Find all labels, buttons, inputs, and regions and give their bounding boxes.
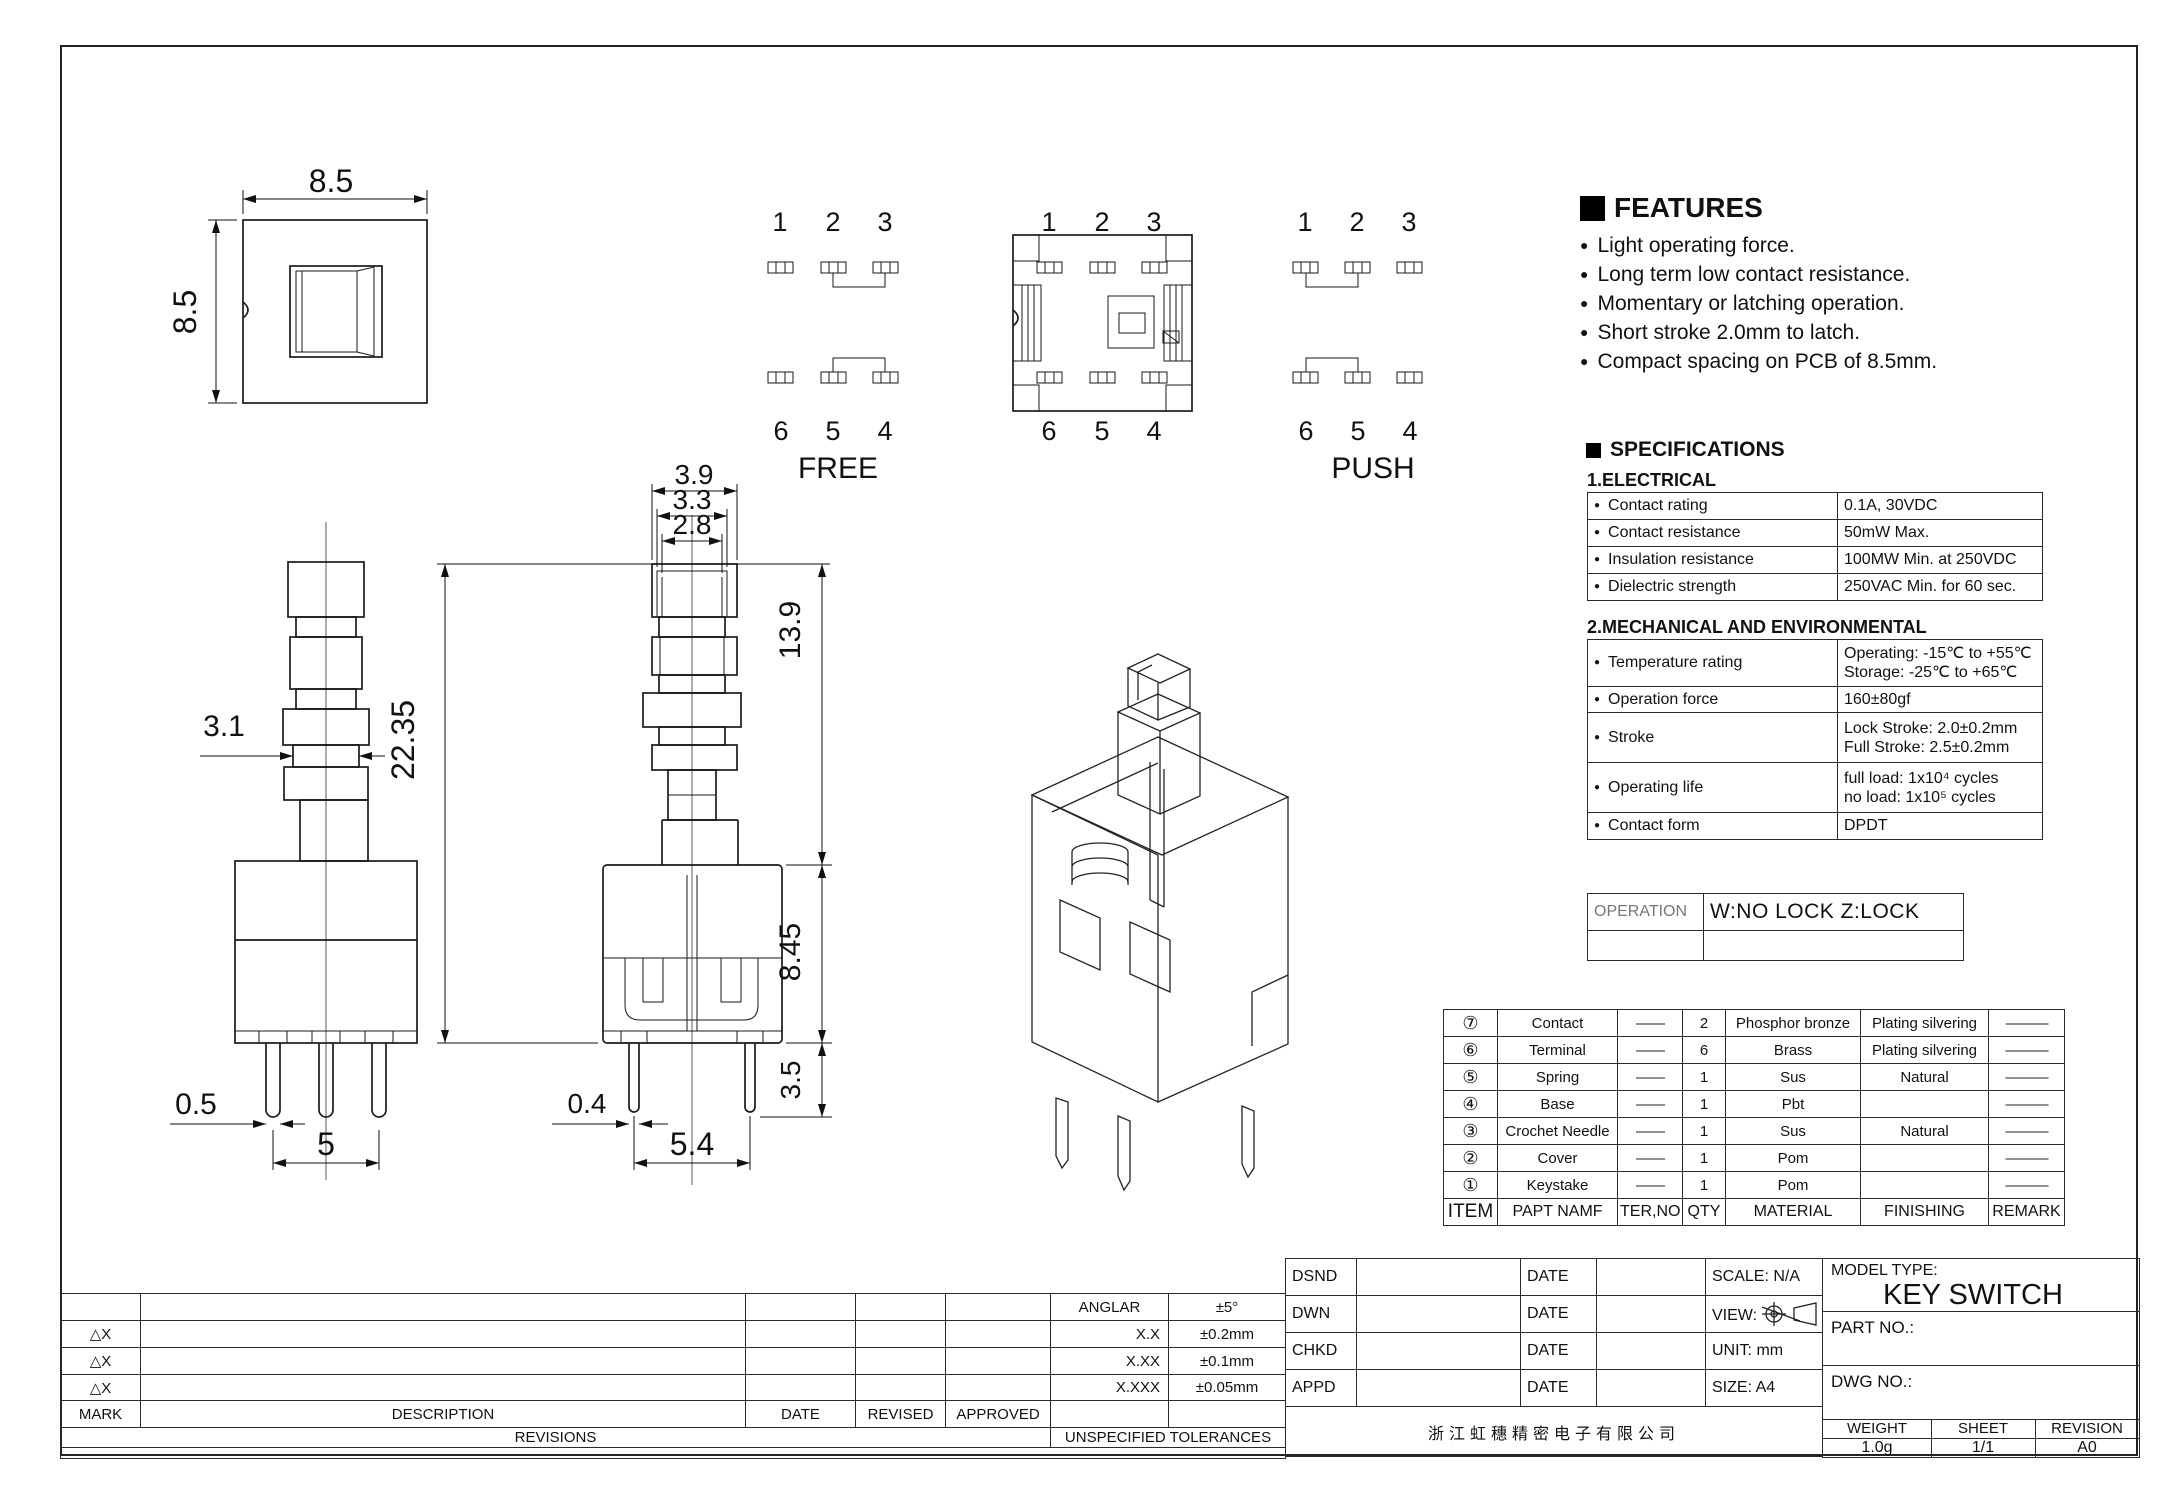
dim-cap-inner: 2.8: [673, 509, 712, 540]
model-type-label: MODEL TYPE:: [1831, 1262, 1938, 1280]
bom-finishing: Natural: [1861, 1064, 1989, 1091]
bom-ter-no: ——: [1618, 1091, 1683, 1118]
revision-mark: △X: [61, 1348, 141, 1375]
side-view: 3.1 0.5 5: [170, 522, 417, 1180]
bom-material: Sus: [1726, 1064, 1861, 1091]
date-label: DATE: [1521, 1296, 1597, 1333]
bom-finishing: [1861, 1172, 1989, 1199]
bom-item: ⑦: [1444, 1010, 1498, 1037]
dim-neck: 3.1: [203, 710, 245, 743]
pin-label: 3: [1146, 207, 1161, 237]
title-block-right: MODEL TYPE: KEY SWITCH PART NO.: DWG NO.…: [1822, 1258, 2140, 1458]
part-no-label: PART NO.:: [1831, 1318, 1914, 1338]
front-view: 3.9 3.3 2.8 22.35 13.9: [385, 459, 832, 1185]
sheet-value: 1/1: [1931, 1439, 2036, 1457]
pin-label: 2: [1349, 207, 1364, 237]
spec-label: Contact form: [1588, 813, 1838, 840]
bom-part-name: Contact: [1498, 1010, 1618, 1037]
revisions-title: REVISIONS: [61, 1428, 1051, 1448]
title-block: DSND DATE SCALE: N/A DWN DATE VIEW: CHKD…: [1285, 1258, 1823, 1457]
bom-row: ② Cover —— 1 Pom ———: [1444, 1145, 2065, 1172]
bom-item: ⑤: [1444, 1064, 1498, 1091]
tolerance-value: ±0.05mm: [1169, 1375, 1286, 1401]
pin-label: 5: [825, 416, 840, 446]
spec-value: 0.1A, 30VDC: [1838, 493, 2043, 520]
bom-material: Brass: [1726, 1037, 1861, 1064]
bom-part-name: Spring: [1498, 1064, 1618, 1091]
tolerance-label: X.X: [1051, 1321, 1169, 1348]
dim-pin-length: 3.5: [775, 1061, 806, 1100]
spec-label: Stroke: [1588, 713, 1838, 763]
size-field: SIZE: A4: [1706, 1370, 1823, 1407]
revisions-col-header: DESCRIPTION: [141, 1401, 746, 1428]
top-view: 1 2 3 6 5 4: [1013, 207, 1192, 446]
bom-header: MATERIAL: [1726, 1199, 1861, 1226]
spec-value: 100MW Min. at 250VDC: [1838, 547, 2043, 574]
date-label: DATE: [1521, 1333, 1597, 1370]
pin-label: 4: [1146, 416, 1161, 446]
bom-row: ④ Base —— 1 Pbt ———: [1444, 1091, 2065, 1118]
mechanical-spec-table: Temperature rating Operating: -15℃ to +5…: [1587, 639, 2043, 840]
revisions-col-header: DATE: [746, 1401, 856, 1428]
revision-value: A0: [2035, 1439, 2139, 1457]
spec-value: 250VAC Min. for 60 sec.: [1838, 574, 2043, 601]
sheet-header: SHEET: [1931, 1420, 2036, 1439]
bom-ter-no: ——: [1618, 1010, 1683, 1037]
features-list: Light operating force. Long term low con…: [1580, 234, 2065, 373]
bom-material: Pom: [1726, 1145, 1861, 1172]
spec-label: Operation force: [1588, 687, 1838, 713]
tolerance-value: ±0.1mm: [1169, 1348, 1286, 1375]
bom-header: QTY: [1683, 1199, 1726, 1226]
tolerance-label: X.XX: [1051, 1348, 1169, 1375]
role-label: APPD: [1286, 1370, 1357, 1407]
bom-item: ⑥: [1444, 1037, 1498, 1064]
tolerance-value: ±5°: [1169, 1294, 1286, 1321]
dwg-no-label: DWG NO.:: [1831, 1372, 1912, 1392]
pin-label: 2: [1094, 207, 1109, 237]
bom-ter-no: ——: [1618, 1064, 1683, 1091]
bom-row: ⑤ Spring —— 1 Sus Natural ———: [1444, 1064, 2065, 1091]
bom-ter-no: ——: [1618, 1145, 1683, 1172]
electrical-title: 1.ELECTRICAL: [1587, 470, 1716, 491]
electrical-spec-table: Contact rating 0.1A, 30VDC Contact resis…: [1587, 492, 2043, 601]
bom-row: ① Keystake —— 1 Pom ———: [1444, 1172, 2065, 1199]
revision-mark: △X: [61, 1321, 141, 1348]
role-label: DWN: [1286, 1296, 1357, 1333]
spec-value: 160±80gf: [1838, 687, 2043, 713]
bom-part-name: Cover: [1498, 1145, 1618, 1172]
pin-label: 1: [772, 207, 787, 237]
pin-label: 5: [1094, 416, 1109, 446]
free-state-label: FREE: [798, 452, 878, 485]
dim-total-height: 22.35: [385, 700, 421, 780]
weight-header: WEIGHT: [1823, 1420, 1932, 1439]
bom-finishing: Plating silvering: [1861, 1037, 1989, 1064]
operation-value: W:NO LOCK Z:LOCK: [1704, 894, 1964, 931]
bom-material: Pom: [1726, 1172, 1861, 1199]
bom-part-name: Keystake: [1498, 1172, 1618, 1199]
bom-table: ⑦ Contact —— 2 Phosphor bronze Plating s…: [1443, 1009, 2065, 1226]
bom-remark: ———: [1989, 1172, 2065, 1199]
bom-item: ①: [1444, 1172, 1498, 1199]
spec-label: Dielectric strength: [1588, 574, 1838, 601]
feature-item: Momentary or latching operation.: [1580, 292, 2065, 315]
small-front-view: 8.5 8.5: [167, 163, 427, 403]
role-label: DSND: [1286, 1259, 1357, 1296]
bom-header: REMARK: [1989, 1199, 2065, 1226]
features-section: FEATURES Light operating force. Long ter…: [1580, 192, 2065, 379]
specifications-title: SPECIFICATIONS: [1610, 438, 1785, 462]
third-angle-projection-icon: [1762, 1302, 1820, 1326]
bom-remark: ———: [1989, 1145, 2065, 1172]
bom-qty: 1: [1683, 1145, 1726, 1172]
company-name: 浙江虹穗精密电子有限公司: [1286, 1407, 1823, 1457]
bom-ter-no: ——: [1618, 1172, 1683, 1199]
spec-label: Insulation resistance: [1588, 547, 1838, 574]
tolerances-title: UNSPECIFIED TOLERANCES: [1051, 1428, 1286, 1448]
pin-label: 6: [1298, 416, 1313, 446]
spec-label: Temperature rating: [1588, 640, 1838, 687]
bom-part-name: Terminal: [1498, 1037, 1618, 1064]
dim-height: 8.5: [167, 290, 203, 334]
feature-item: Compact spacing on PCB of 8.5mm.: [1580, 350, 2065, 373]
operation-table: OPERATION W:NO LOCK Z:LOCK: [1587, 893, 1964, 961]
pin-label: 3: [1401, 207, 1416, 237]
bom-material: Pbt: [1726, 1091, 1861, 1118]
revision-header: REVISION: [2035, 1420, 2139, 1439]
spec-value-line: Operating: -15℃ to +55℃: [1844, 644, 2036, 663]
date-label: DATE: [1521, 1259, 1597, 1296]
bom-remark: ———: [1989, 1037, 2065, 1064]
revisions-col-header: APPROVED: [946, 1401, 1051, 1428]
pin-label: 1: [1041, 207, 1056, 237]
bom-qty: 2: [1683, 1010, 1726, 1037]
revision-mark: △X: [61, 1375, 141, 1401]
drawing-sheet: 8.5 8.5 1 2 3 6 5 4 FREE: [0, 0, 2180, 1492]
section-square-icon: [1580, 196, 1605, 221]
pin-label: 6: [773, 416, 788, 446]
spec-value-line: no load: 1x10⁵ cycles: [1844, 788, 2036, 807]
pin-label: 5: [1350, 416, 1365, 446]
operation-label: OPERATION: [1588, 894, 1704, 931]
bom-qty: 1: [1683, 1118, 1726, 1145]
revisions-table: ANGLAR ±5° △X X.X ±0.2mm △X X.XX ±0.1mm …: [60, 1293, 1286, 1459]
bom-row: ③ Crochet Needle —— 1 Sus Natural ———: [1444, 1118, 2065, 1145]
bom-item: ②: [1444, 1145, 1498, 1172]
bom-item: ④: [1444, 1091, 1498, 1118]
bom-row: ⑥ Terminal —— 6 Brass Plating silvering …: [1444, 1037, 2065, 1064]
bom-finishing: Plating silvering: [1861, 1010, 1989, 1037]
bom-header-row: ITEM PAPT NAMF TER,NO QTY MATERIAL FINIS…: [1444, 1199, 2065, 1226]
bom-header: ITEM: [1444, 1199, 1498, 1226]
bom-qty: 1: [1683, 1064, 1726, 1091]
spec-value-line: Storage: -25℃ to +65℃: [1844, 663, 2036, 682]
features-title: FEATURES: [1614, 192, 1763, 224]
mechanical-title: 2.MECHANICAL AND ENVIRONMENTAL: [1587, 617, 1927, 638]
weight-value: 1.0g: [1823, 1439, 1932, 1457]
bom-remark: ———: [1989, 1118, 2065, 1145]
bom-qty: 1: [1683, 1172, 1726, 1199]
date-label: DATE: [1521, 1370, 1597, 1407]
bom-part-name: Base: [1498, 1091, 1618, 1118]
bom-material: Sus: [1726, 1118, 1861, 1145]
spec-value-line: full load: 1x10⁴ cycles: [1844, 769, 2036, 788]
pin-label: 3: [877, 207, 892, 237]
tolerance-label: ANGLAR: [1051, 1294, 1169, 1321]
feature-item: Short stroke 2.0mm to latch.: [1580, 321, 2065, 344]
dim-pin-pitch: 5: [317, 1126, 335, 1162]
bom-qty: 6: [1683, 1037, 1726, 1064]
push-circuit-diagram: 1 2 3 6 5 4 PUSH: [1293, 207, 1422, 485]
pin-label: 4: [1402, 416, 1417, 446]
role-label: CHKD: [1286, 1333, 1357, 1370]
spec-value-line: Lock Stroke: 2.0±0.2mm: [1844, 719, 2036, 738]
pin-label: 6: [1041, 416, 1056, 446]
bom-ter-no: ——: [1618, 1118, 1683, 1145]
dim-pin-pitch: 5.4: [670, 1126, 714, 1162]
bom-finishing: [1861, 1091, 1989, 1118]
scale-field: SCALE: N/A: [1706, 1259, 1823, 1296]
view-label: VIEW:: [1712, 1307, 1757, 1324]
isometric-view: [1032, 654, 1288, 1190]
bom-remark: ———: [1989, 1064, 2065, 1091]
spec-value: DPDT: [1838, 813, 2043, 840]
spec-value: 50mW Max.: [1838, 520, 2043, 547]
model-type-value: KEY SWITCH: [1883, 1279, 2063, 1312]
bom-row: ⑦ Contact —— 2 Phosphor bronze Plating s…: [1444, 1010, 2065, 1037]
pin-label: 4: [877, 416, 892, 446]
spec-label: Operating life: [1588, 763, 1838, 813]
bom-finishing: [1861, 1145, 1989, 1172]
dim-width: 8.5: [309, 163, 353, 199]
tolerance-label: X.XXX: [1051, 1375, 1169, 1401]
bom-remark: ———: [1989, 1010, 2065, 1037]
bom-header: TER,NO: [1618, 1199, 1683, 1226]
tolerance-value: ±0.2mm: [1169, 1321, 1286, 1348]
free-circuit-diagram: 1 2 3 6 5 4 FREE: [768, 207, 898, 485]
dim-body-height: 8.45: [774, 923, 807, 981]
pin-label: 2: [825, 207, 840, 237]
feature-item: Long term low contact resistance.: [1580, 263, 2065, 286]
view-field: VIEW:: [1706, 1296, 1823, 1333]
revisions-col-header: REVISED: [856, 1401, 946, 1428]
revisions-col-header: MARK: [61, 1401, 141, 1428]
bom-remark: ———: [1989, 1091, 2065, 1118]
bom-item: ③: [1444, 1118, 1498, 1145]
feature-item: Light operating force.: [1580, 234, 2065, 257]
dim-pin-width: 0.4: [568, 1088, 607, 1119]
spec-value-line: Full Stroke: 2.5±0.2mm: [1844, 738, 2036, 757]
dim-plunger-height: 13.9: [774, 601, 807, 659]
dim-pin-width: 0.5: [175, 1088, 217, 1121]
bom-qty: 1: [1683, 1091, 1726, 1118]
section-square-icon: [1586, 443, 1601, 458]
spec-label: Contact resistance: [1588, 520, 1838, 547]
bom-header: FINISHING: [1861, 1199, 1989, 1226]
unit-field: UNIT: mm: [1706, 1333, 1823, 1370]
push-state-label: PUSH: [1331, 452, 1414, 485]
bom-part-name: Crochet Needle: [1498, 1118, 1618, 1145]
pin-label: 1: [1297, 207, 1312, 237]
bom-ter-no: ——: [1618, 1037, 1683, 1064]
spec-label: Contact rating: [1588, 493, 1838, 520]
specifications-header: SPECIFICATIONS: [1586, 438, 1785, 462]
bom-material: Phosphor bronze: [1726, 1010, 1861, 1037]
bom-header: PAPT NAMF: [1498, 1199, 1618, 1226]
bom-finishing: Natural: [1861, 1118, 1989, 1145]
